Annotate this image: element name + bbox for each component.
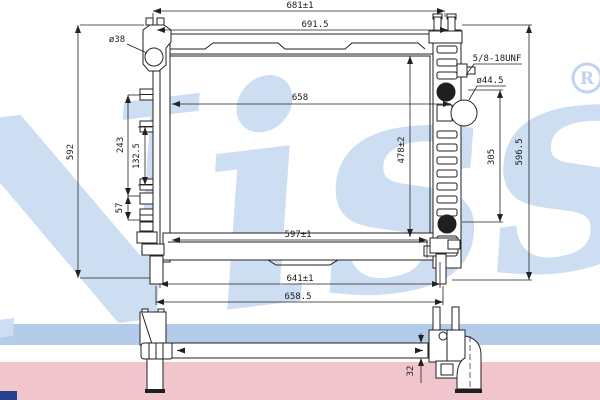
svg-text:57: 57 [115, 203, 125, 214]
right-outlet-pipe [436, 254, 446, 284]
svg-text:ø44.5: ø44.5 [476, 76, 503, 86]
svg-text:5/8-18UNF: 5/8-18UNF [473, 54, 522, 64]
left-pipe [147, 359, 163, 391]
svg-text:658: 658 [292, 93, 308, 103]
svg-text:641±1: 641±1 [286, 274, 313, 284]
svg-text:243: 243 [116, 137, 126, 153]
svg-text:592: 592 [66, 144, 76, 160]
bottom-view-core-bar [172, 343, 428, 358]
svg-text:658.5: 658.5 [284, 292, 311, 302]
mount-hole [145, 48, 163, 66]
svg-text:597±1: 597±1 [284, 230, 311, 240]
svg-text:32: 32 [406, 366, 416, 377]
drawing-svg: Nissens R [0, 0, 600, 400]
radiator-technical-drawing: Nissens R [0, 0, 600, 400]
bracket-hole [439, 332, 447, 340]
inlet-port [451, 100, 477, 126]
svg-text:305: 305 [487, 149, 497, 165]
left-outlet-pipe [150, 256, 163, 284]
upper-plug [437, 83, 455, 101]
svg-text:596.5: 596.5 [515, 138, 525, 165]
svg-text:ø38: ø38 [109, 35, 125, 45]
lower-plug [438, 215, 456, 233]
svg-text:681±1: 681±1 [286, 1, 313, 11]
top-tank [163, 34, 433, 56]
svg-text:R: R [580, 69, 595, 89]
svg-text:691.5: 691.5 [301, 20, 328, 30]
svg-text:478±2: 478±2 [397, 136, 407, 163]
svg-text:132.5: 132.5 [132, 143, 142, 169]
